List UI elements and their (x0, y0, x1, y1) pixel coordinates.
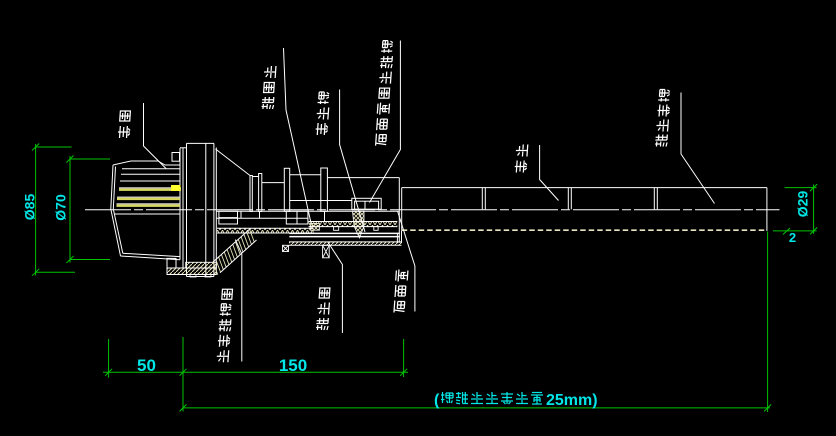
svg-text:50: 50 (137, 356, 156, 375)
svg-text:Ø85: Ø85 (22, 194, 38, 221)
svg-text:150: 150 (279, 356, 307, 375)
svg-text:Ø70: Ø70 (53, 194, 69, 221)
svg-text:(: ( (434, 392, 440, 409)
svg-text:25mm): 25mm) (546, 392, 598, 409)
svg-text:Ø29: Ø29 (795, 191, 811, 218)
svg-text:2: 2 (789, 230, 796, 245)
